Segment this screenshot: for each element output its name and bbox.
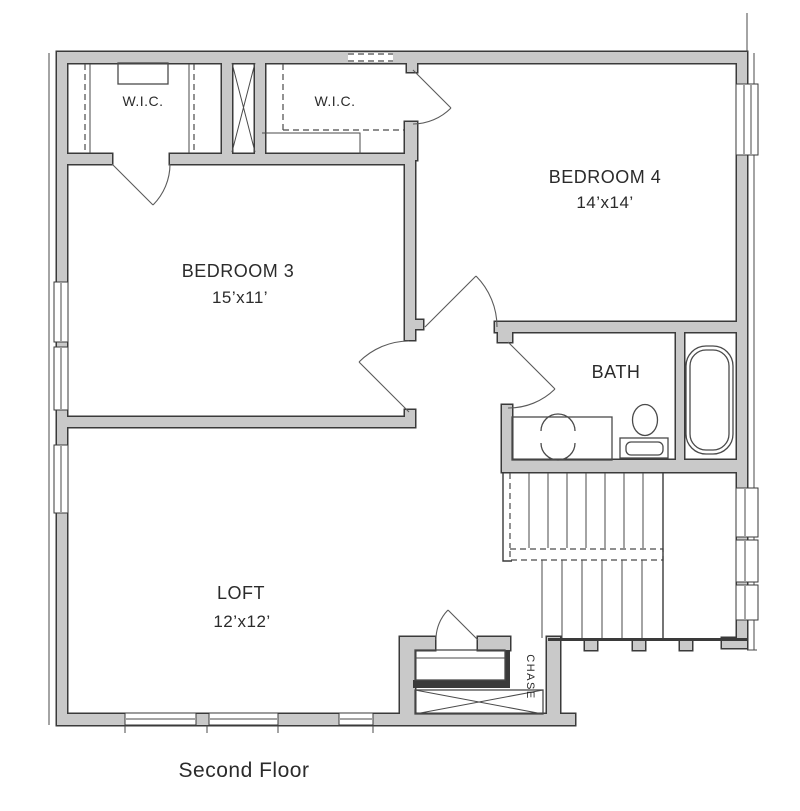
window-stair-right-3 xyxy=(736,585,758,620)
room-label-bedroom3: BEDROOM 3 xyxy=(182,261,295,281)
window-bedroom3-left-1 xyxy=(54,282,68,342)
plan-title: Second Floor xyxy=(179,759,310,782)
stair-treads-upper xyxy=(529,473,643,548)
wic2-shelf-line xyxy=(262,133,360,154)
door-wic2 xyxy=(413,70,451,124)
room-label-bedroom4: BEDROOM 4 xyxy=(549,167,662,187)
window-bedroom4-right xyxy=(736,84,758,155)
stair-open-edge xyxy=(503,472,512,561)
room-dims-loft: 12’x12’ xyxy=(213,612,270,631)
stair-treads-lower xyxy=(542,560,642,638)
loft-closet xyxy=(415,650,505,680)
window-loft-bottom-1 xyxy=(125,713,196,725)
room-label-chase: CHASE xyxy=(524,654,536,699)
door-bedroom3 xyxy=(359,341,409,412)
window-stair-right-1 xyxy=(736,488,758,537)
room-label-wic2: W.I.C. xyxy=(314,93,355,109)
wic1-shelf-box xyxy=(118,63,168,84)
window-loft-bottom-2 xyxy=(209,713,278,725)
room-label-wic1: W.I.C. xyxy=(122,93,163,109)
stair-floor-edge xyxy=(548,638,747,641)
vanity-sink xyxy=(512,414,612,460)
room-label-loft: LOFT xyxy=(217,583,265,603)
sink-bowl xyxy=(541,414,575,460)
room-label-bath: BATH xyxy=(592,362,641,382)
door-wic1 xyxy=(112,164,170,205)
window-loft-left xyxy=(54,445,68,513)
exterior-offset-lines xyxy=(49,13,757,733)
stairs xyxy=(503,472,663,638)
wic2-interior xyxy=(262,64,404,154)
room-dims-bedroom4: 14’x14’ xyxy=(576,193,633,212)
shaft-x-mark xyxy=(232,63,255,152)
toilet xyxy=(620,405,668,459)
floor-plan-page: W.I.C. W.I.C. BEDROOM 4 14’x14’ BEDROOM … xyxy=(0,0,800,811)
window-bedroom3-left-2 xyxy=(54,347,68,410)
room-dims-bedroom3: 15’x11’ xyxy=(212,288,268,307)
walls xyxy=(57,52,747,725)
door-loft-closet xyxy=(436,610,478,640)
window-stair-right-2 xyxy=(736,540,758,582)
window-loft-bottom-3 xyxy=(339,713,373,725)
door-bath xyxy=(508,342,555,408)
door-bedroom4 xyxy=(425,276,497,327)
chase-x-box xyxy=(415,690,543,714)
labels: W.I.C. W.I.C. BEDROOM 4 14’x14’ BEDROOM … xyxy=(122,93,661,782)
floor-plan-drawing: W.I.C. W.I.C. BEDROOM 4 14’x14’ BEDROOM … xyxy=(0,0,800,811)
stair-rail-dashed-band xyxy=(510,549,663,560)
dashed-opening-top-wall xyxy=(348,53,393,62)
closet-divider-wall xyxy=(413,680,507,688)
bathtub xyxy=(686,346,733,454)
